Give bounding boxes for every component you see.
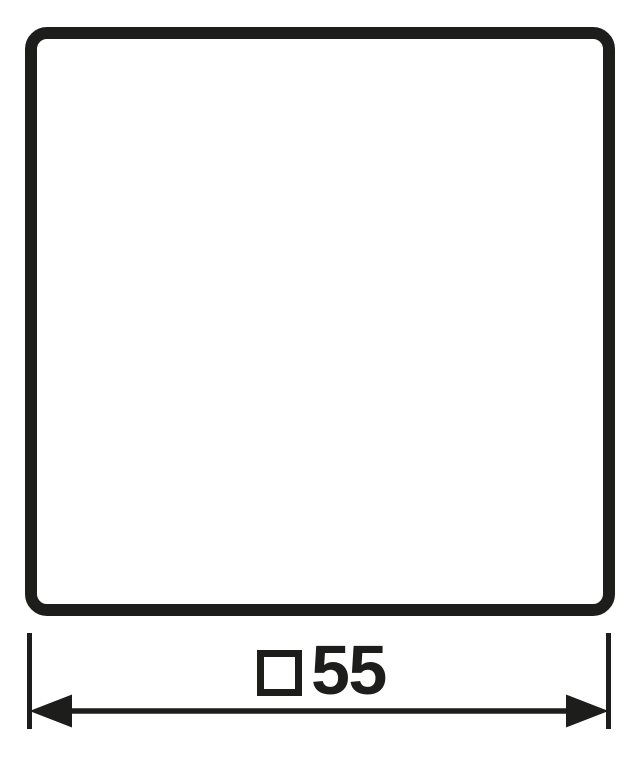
dimension-value: 55	[311, 635, 386, 705]
right-arrowhead-icon	[566, 695, 609, 728]
dimension-drawing: 55	[0, 0, 638, 757]
left-arrowhead-icon	[30, 695, 73, 728]
square-symbol-icon	[257, 650, 302, 696]
